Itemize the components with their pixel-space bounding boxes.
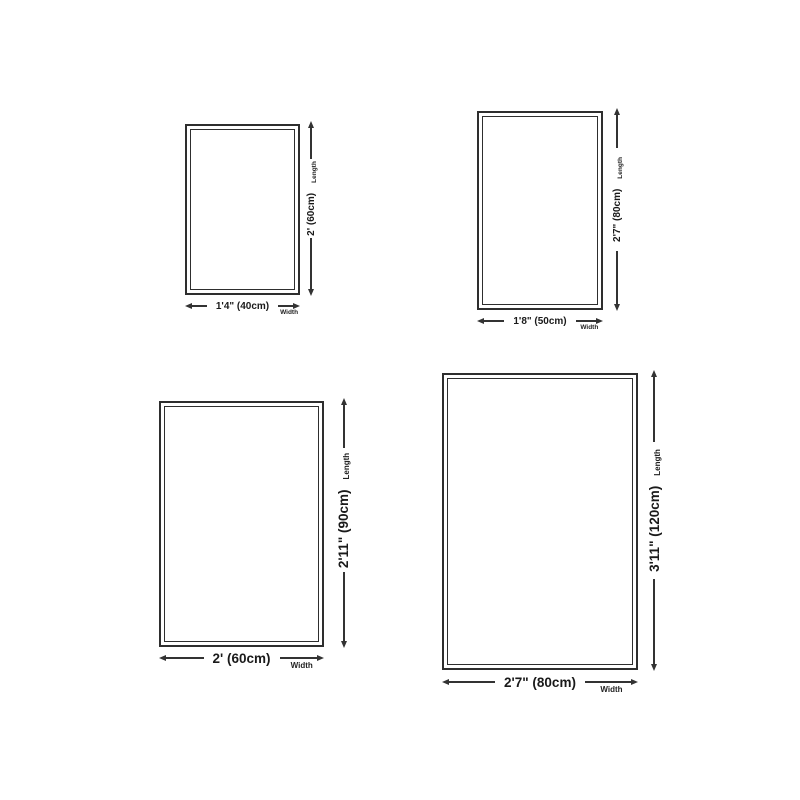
rug-diagram-60x90: 2'11" (90cm) Length 2' (60cm) Width bbox=[159, 401, 354, 666]
width-value-label: 1'8" (50cm) bbox=[513, 316, 566, 327]
width-dimension: 1'8" (50cm) Width bbox=[477, 316, 603, 326]
rug-inner-border bbox=[190, 129, 295, 290]
length-dimension: 3'11" (120cm) Length bbox=[649, 370, 659, 671]
arrow-down-icon bbox=[341, 641, 347, 648]
width-axis-label: Width bbox=[278, 309, 300, 316]
dimension-line bbox=[616, 115, 618, 148]
dimension-line bbox=[343, 405, 345, 448]
width-dimension: 1'4" (40cm) Width bbox=[185, 301, 300, 311]
dimension-line bbox=[653, 579, 655, 664]
length-dimension: 2' (60cm) Length bbox=[306, 121, 316, 296]
length-dimension: 2'7" (80cm) Length bbox=[612, 108, 622, 311]
rug-outline bbox=[477, 111, 603, 310]
width-dimension: 2'7" (80cm) Width bbox=[442, 677, 638, 687]
arrow-down-icon bbox=[308, 289, 314, 296]
dimension-line bbox=[192, 305, 207, 307]
arrow-up-icon bbox=[341, 398, 347, 405]
width-axis-label: Width bbox=[576, 324, 603, 331]
arrow-left-icon bbox=[159, 655, 166, 661]
arrow-left-icon bbox=[442, 679, 449, 685]
length-value-label: 3'11" (120cm) bbox=[647, 486, 662, 572]
dimension-line bbox=[576, 320, 596, 322]
arrow-down-icon bbox=[614, 304, 620, 311]
rug-diagram-50x80: 2'7" (80cm) Length 1'8" (50cm) Width bbox=[477, 111, 627, 326]
dimension-line bbox=[166, 657, 204, 659]
width-value-label: 2' (60cm) bbox=[213, 651, 271, 666]
dimension-line bbox=[278, 305, 293, 307]
rug-outline bbox=[185, 124, 300, 295]
dimension-line bbox=[280, 657, 318, 659]
dimension-line bbox=[310, 128, 312, 159]
width-axis-label: Width bbox=[280, 661, 325, 670]
rug-diagram-40x60: 2' (60cm) Length 1'4" (40cm) Width bbox=[185, 124, 326, 316]
width-dimension: 2' (60cm) Width bbox=[159, 653, 324, 663]
dimension-line bbox=[310, 238, 312, 289]
width-axis-label: Width bbox=[585, 685, 638, 694]
dimension-line bbox=[585, 681, 631, 683]
length-dimension: 2'11" (90cm) Length bbox=[339, 398, 349, 648]
length-value-label: 2' (60cm) bbox=[306, 193, 317, 236]
dimension-line bbox=[616, 251, 618, 304]
length-value-label: 2'11" (90cm) bbox=[337, 489, 352, 568]
arrow-up-icon bbox=[651, 370, 657, 377]
rug-inner-border bbox=[164, 406, 319, 642]
rug-outline bbox=[442, 373, 638, 670]
width-value-label: 2'7" (80cm) bbox=[504, 675, 576, 690]
length-axis-label: Length bbox=[653, 449, 662, 476]
rug-inner-border bbox=[482, 116, 598, 305]
length-value-label: 2'7" (80cm) bbox=[612, 189, 623, 242]
rug-diagram-80x120: 3'11" (120cm) Length 2'7" (80cm) Width bbox=[442, 373, 664, 693]
rug-outline bbox=[159, 401, 324, 647]
dimension-line bbox=[484, 320, 504, 322]
dimension-line bbox=[343, 572, 345, 641]
length-axis-label: Length bbox=[617, 157, 624, 179]
length-axis-label: Length bbox=[343, 452, 352, 479]
width-value-label: 1'4" (40cm) bbox=[216, 301, 269, 312]
arrow-up-icon bbox=[308, 121, 314, 128]
arrow-left-icon bbox=[477, 318, 484, 324]
dimension-line bbox=[449, 681, 495, 683]
arrow-up-icon bbox=[614, 108, 620, 115]
length-axis-label: Length bbox=[311, 161, 318, 183]
size-diagram-canvas: 2' (60cm) Length 1'4" (40cm) Width 2'7" … bbox=[0, 0, 800, 800]
dimension-line bbox=[653, 377, 655, 442]
arrow-down-icon bbox=[651, 664, 657, 671]
rug-inner-border bbox=[447, 378, 633, 665]
arrow-left-icon bbox=[185, 303, 192, 309]
